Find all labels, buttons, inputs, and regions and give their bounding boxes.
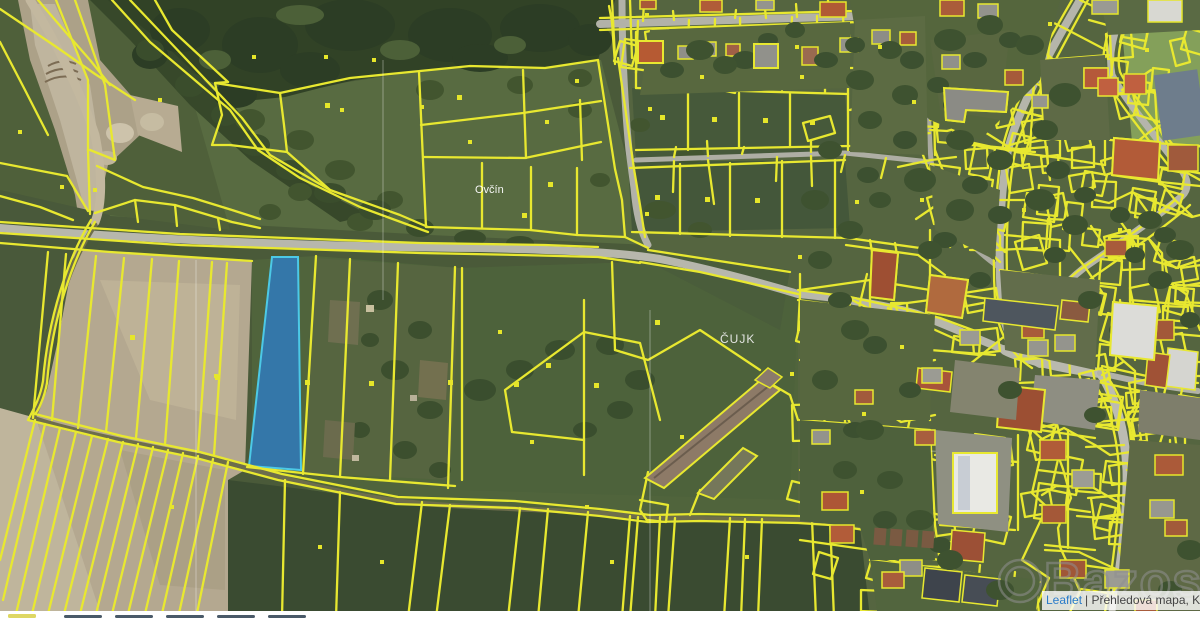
svg-text:| Přehledová mapa, Ka: | Přehledová mapa, Ka (1085, 593, 1200, 607)
svg-text:ČUJK: ČUJK (720, 331, 755, 346)
svg-text:Ovčín: Ovčín (475, 184, 504, 196)
svg-text:Leaflet: Leaflet (1046, 593, 1083, 607)
